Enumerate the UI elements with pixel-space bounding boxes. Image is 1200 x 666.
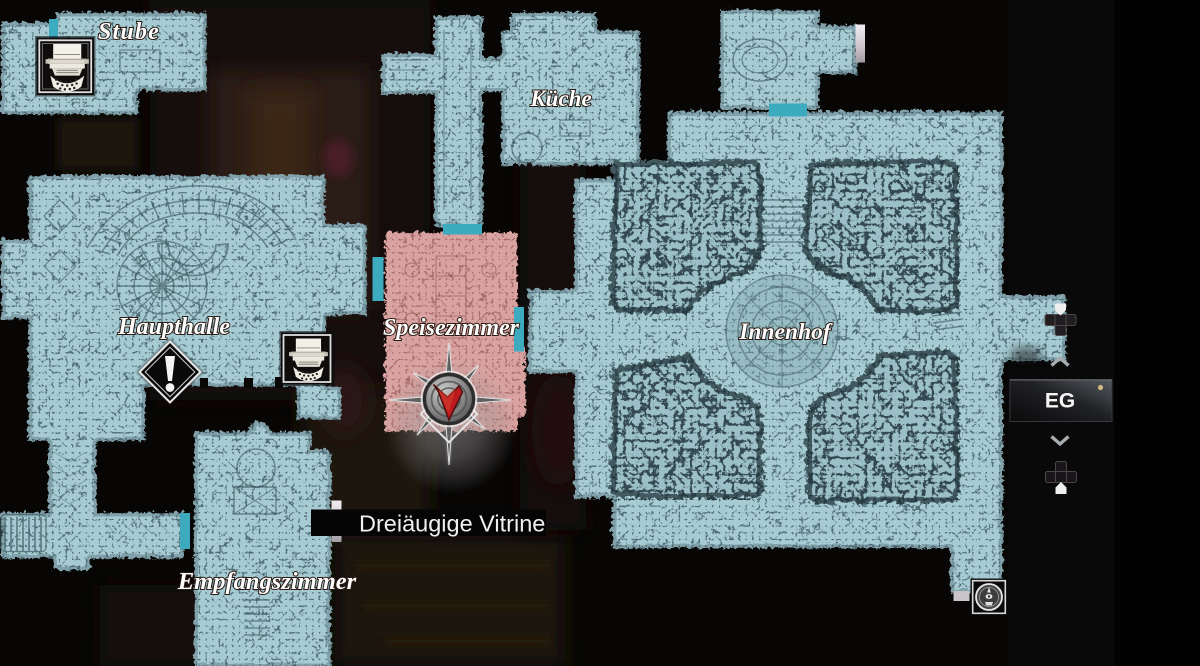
- svg-text:Empfangszimmer: Empfangszimmer: [177, 568, 357, 595]
- svg-text:Innenhof: Innenhof: [738, 319, 833, 345]
- svg-text:Küche: Küche: [529, 86, 591, 111]
- svg-text:Speisezimmer: Speisezimmer: [383, 315, 520, 341]
- svg-text:EG: EG: [1045, 390, 1075, 413]
- svg-text:Dreiäugige Vitrine: Dreiäugige Vitrine: [359, 511, 545, 537]
- svg-text:Haupthalle: Haupthalle: [117, 314, 230, 340]
- svg-text:Stube: Stube: [98, 19, 160, 45]
